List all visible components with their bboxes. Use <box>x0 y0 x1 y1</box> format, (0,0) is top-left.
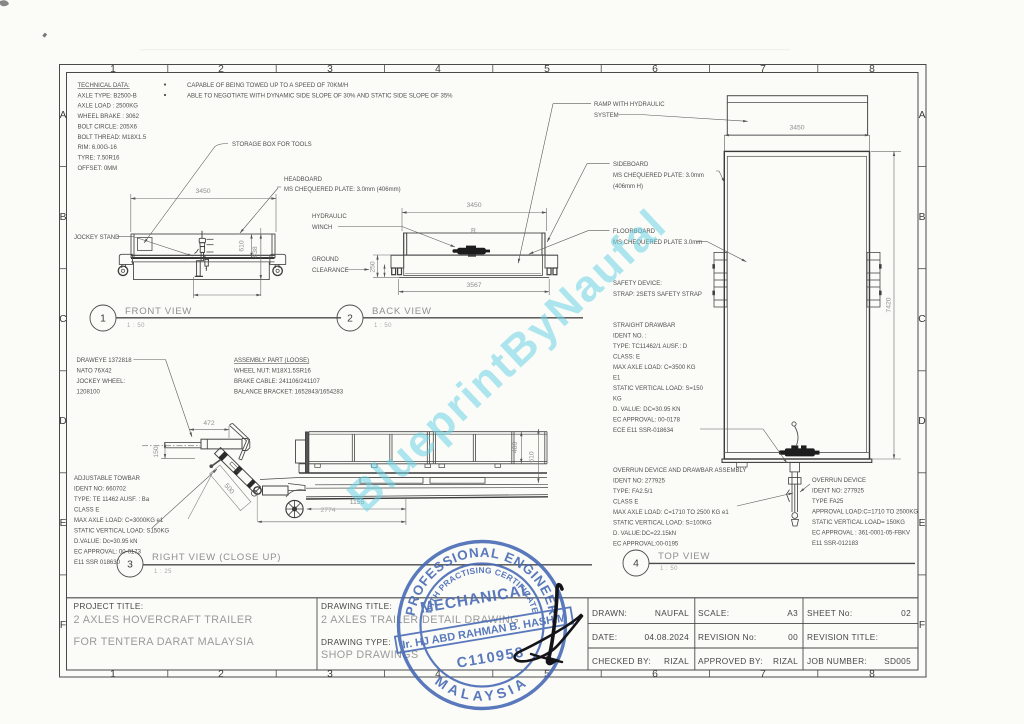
svg-text:E11 SSR 018630: E11 SSR 018630 <box>74 560 121 566</box>
svg-text:EC APPROVAL:00-0195: EC APPROVAL:00-0195 <box>613 542 679 548</box>
svg-text:1: 1 <box>110 669 116 680</box>
svg-text:STATIC VERTICAL LOAD: S=150: STATIC VERTICAL LOAD: S=150 <box>613 386 704 392</box>
svg-text:A3: A3 <box>787 608 798 618</box>
svg-text:406: 406 <box>512 442 519 454</box>
svg-text:3: 3 <box>327 64 333 75</box>
svg-text:EC APPROVAL : 361-0001-05-FBKV: EC APPROVAL : 361-0001-05-FBKV <box>812 531 910 537</box>
svg-text:CLASS E: CLASS E <box>613 500 638 506</box>
svg-text:1: 1 <box>110 64 116 75</box>
svg-text:C: C <box>59 314 67 325</box>
svg-text:TYPE: FA2.5/1: TYPE: FA2.5/1 <box>613 489 653 495</box>
svg-text:D.VALUE: Dc=30.95 kN: D.VALUE: Dc=30.95 kN <box>74 539 137 545</box>
svg-text:DRAWING TYPE:: DRAWING TYPE: <box>321 637 391 647</box>
svg-text:E1: E1 <box>613 376 621 382</box>
svg-text:JOCKEY STAND: JOCKEY STAND <box>74 235 120 241</box>
svg-text:C: C <box>918 314 926 325</box>
svg-text:EC APPROVAL: 00-0178: EC APPROVAL: 00-0178 <box>613 418 681 424</box>
svg-text:5: 5 <box>544 64 550 75</box>
svg-text:TYRE: 7.50R16: TYRE: 7.50R16 <box>78 156 121 162</box>
svg-text:3450: 3450 <box>466 202 481 209</box>
svg-text:00: 00 <box>788 632 798 642</box>
svg-text:AXLE TYPE: B2500-B: AXLE TYPE: B2500-B <box>78 93 137 99</box>
svg-text:6: 6 <box>652 64 658 75</box>
svg-text:WINCH: WINCH <box>312 225 332 231</box>
svg-text:E: E <box>60 518 67 529</box>
svg-text:MAX AXLE LOAD: C=3500 KG: MAX AXLE LOAD: C=3500 KG <box>613 365 696 371</box>
svg-text:STRAP: 2SETS SAFETY STRAP: STRAP: 2SETS SAFETY STRAP <box>613 292 702 298</box>
svg-text:1: 1 <box>100 314 106 325</box>
svg-text:JOCKEY WHEEL:: JOCKEY WHEEL: <box>77 379 126 385</box>
svg-text:STATIC VERTICAL LOAD: S=100KG: STATIC VERTICAL LOAD: S=100KG <box>613 521 712 527</box>
svg-text:BOLT THREAD: M18X1.5: BOLT THREAD: M18X1.5 <box>78 135 147 141</box>
svg-text:IDENT NO. :: IDENT NO. : <box>613 334 647 340</box>
svg-text:D. VALUE:DC=22.15kN: D. VALUE:DC=22.15kN <box>613 531 676 537</box>
svg-text:150: 150 <box>153 446 160 458</box>
svg-text:IDENT NO: 277925: IDENT NO: 277925 <box>812 489 865 495</box>
svg-text:OFFSET: 0MM: OFFSET: 0MM <box>78 166 118 172</box>
svg-text:DRAWEYE 1372818: DRAWEYE 1372818 <box>77 358 133 364</box>
svg-text:BRAKE CABLE: 241106/241107: BRAKE CABLE: 241106/241107 <box>234 379 321 385</box>
svg-text:D. VALUE: DC=30.95 KN: D. VALUE: DC=30.95 KN <box>613 407 680 413</box>
svg-text:JOB NUMBER:: JOB NUMBER: <box>807 656 867 666</box>
svg-text:1 : 50: 1 : 50 <box>660 566 678 572</box>
svg-text:STATIC VERTICAL LOAD: S150KG: STATIC VERTICAL LOAD: S150KG <box>74 529 169 535</box>
svg-text:CLASS E: CLASS E <box>74 508 99 514</box>
svg-text:3: 3 <box>127 560 133 571</box>
svg-text:MAX AXLE LOAD: C=1710 TO 2500: MAX AXLE LOAD: C=1710 TO 2500 KG e1 <box>613 510 729 516</box>
svg-text:IDENT NO: 277925: IDENT NO: 277925 <box>613 479 666 485</box>
svg-text:A: A <box>60 110 67 121</box>
svg-text:DRAWING TITLE:: DRAWING TITLE: <box>321 601 392 611</box>
svg-text:RAMP WITH HYDRAULIC: RAMP WITH HYDRAULIC <box>594 102 665 108</box>
svg-text:REVISION TITLE:: REVISION TITLE: <box>807 632 878 642</box>
svg-text:FRONT VIEW: FRONT VIEW <box>125 306 192 317</box>
svg-text:8: 8 <box>869 669 875 680</box>
svg-text:GROUND: GROUND <box>312 257 339 263</box>
svg-text:R: R <box>471 228 476 235</box>
svg-text:REVISION No:: REVISION No: <box>698 632 756 642</box>
svg-text:472: 472 <box>203 420 215 427</box>
svg-text:CAPABLE OF BEING TOWED UP TO A: CAPABLE OF BEING TOWED UP TO A SPEED OF … <box>187 83 348 89</box>
svg-text:8: 8 <box>869 64 875 75</box>
svg-text:TYPE: TC11462/1 AUSF.: D: TYPE: TC11462/1 AUSF.: D <box>613 344 688 350</box>
svg-text:APPROVAL LOAD:C=1710 TO 2500KG: APPROVAL LOAD:C=1710 TO 2500KG <box>812 510 918 516</box>
svg-text:RIZAL: RIZAL <box>773 656 798 666</box>
svg-text:DRAWN:: DRAWN: <box>592 608 627 618</box>
svg-text:ASSEMBLY PART (LOOSE): ASSEMBLY PART (LOOSE) <box>234 358 309 364</box>
svg-text:B: B <box>60 212 67 223</box>
svg-text:D: D <box>59 416 66 427</box>
svg-text:SIDEBOARD: SIDEBOARD <box>613 162 649 168</box>
svg-text:OVERRUN DEVICE: OVERRUN DEVICE <box>812 478 866 484</box>
svg-text:(406mm H): (406mm H) <box>613 184 643 190</box>
svg-text:838: 838 <box>252 246 259 258</box>
svg-text:RIM: 6.00G-16: RIM: 6.00G-16 <box>78 145 118 151</box>
svg-text:CHECKED BY:: CHECKED BY: <box>592 656 651 666</box>
svg-text:TYPE FA25: TYPE FA25 <box>812 499 844 505</box>
svg-text:1208100: 1208100 <box>77 390 101 396</box>
svg-text:WHEEL BRAKE : 3062: WHEEL BRAKE : 3062 <box>78 114 140 120</box>
svg-text:F: F <box>60 620 66 631</box>
svg-text:RIZAL: RIZAL <box>664 656 689 666</box>
svg-text:CLEARANCE: CLEARANCE <box>312 268 349 274</box>
svg-text:02: 02 <box>901 608 911 618</box>
svg-text:2: 2 <box>347 314 353 325</box>
svg-text:MS CHEQUERED PLATE: 3.0mm: MS CHEQUERED PLATE: 3.0mm <box>613 173 704 179</box>
svg-text:WHEEL NUT: M18X1.5SR16: WHEEL NUT: M18X1.5SR16 <box>234 369 311 375</box>
svg-text:OVERRUN DEVICE AND DRAWBAR ASS: OVERRUN DEVICE AND DRAWBAR ASSEMBLY <box>613 468 746 474</box>
svg-text:STORAGE BOX FOR TOOLS: STORAGE BOX FOR TOOLS <box>232 142 312 148</box>
svg-text:2: 2 <box>218 64 224 75</box>
svg-text:MAX AXLE LOAD: C=3000KG e1: MAX AXLE LOAD: C=3000KG e1 <box>74 518 164 524</box>
svg-text:RIGHT VIEW (CLOSE UP): RIGHT VIEW (CLOSE UP) <box>152 552 281 563</box>
svg-text:610: 610 <box>239 240 246 252</box>
svg-text:NATO 76X42: NATO 76X42 <box>77 369 113 375</box>
svg-text:2 AXLES HOVERCRAFT TRAILER: 2 AXLES HOVERCRAFT TRAILER <box>74 614 253 626</box>
svg-text:NAUFAL: NAUFAL <box>655 608 689 618</box>
svg-text:APPROVED BY:: APPROVED BY: <box>698 656 763 666</box>
svg-text:D: D <box>918 416 925 427</box>
svg-text:HYDRAULIC: HYDRAULIC <box>312 214 347 220</box>
svg-text:FOR TENTERA DARAT MALAYSIA: FOR TENTERA DARAT MALAYSIA <box>74 636 255 648</box>
svg-text:SD005: SD005 <box>884 656 911 666</box>
svg-text:3450: 3450 <box>789 125 804 132</box>
svg-text:ADJUSTABLE TOWBAR: ADJUSTABLE TOWBAR <box>74 476 141 482</box>
svg-text:4: 4 <box>435 64 441 75</box>
svg-text:STATIC VERTICAL LOAD= 150KG: STATIC VERTICAL LOAD= 150KG <box>812 520 905 526</box>
svg-text:3567: 3567 <box>466 282 481 289</box>
svg-text:F: F <box>919 620 925 631</box>
svg-text:ECE E11 SSR-018634: ECE E11 SSR-018634 <box>613 428 674 434</box>
svg-text:SYSTEM: SYSTEM <box>594 113 619 119</box>
svg-text:3450: 3450 <box>195 188 210 195</box>
svg-text:MS CHEQUERED PLATE: 3.0mm (406: MS CHEQUERED PLATE: 3.0mm (406mm) <box>284 187 401 193</box>
svg-text:CLASS: E: CLASS: E <box>613 355 640 361</box>
svg-text:610: 610 <box>529 451 536 463</box>
svg-text:7: 7 <box>760 64 766 75</box>
svg-text:AXLE LOAD : 2500KG: AXLE LOAD : 2500KG <box>78 104 139 110</box>
svg-text:EC APPROVAL: 00-0173: EC APPROVAL: 00-0173 <box>74 550 142 556</box>
svg-text:1 : 25: 1 : 25 <box>154 569 172 575</box>
svg-text:TYPE: TE 11462 AUSF. : Ba: TYPE: TE 11462 AUSF. : Ba <box>74 497 150 503</box>
svg-text:STRAIGHT DRAWBAR: STRAIGHT DRAWBAR <box>613 323 676 329</box>
svg-text:E: E <box>919 518 926 529</box>
svg-text:4: 4 <box>633 559 639 570</box>
svg-text:SHEET No:: SHEET No: <box>807 608 852 618</box>
svg-text:04.08.2024: 04.08.2024 <box>644 632 689 642</box>
svg-text:2774: 2774 <box>320 507 335 514</box>
svg-text:BALANCE BRACKET: 1652843/16542: BALANCE BRACKET: 1652843/1654283 <box>234 390 344 396</box>
svg-text:HEADBOARD: HEADBOARD <box>284 177 323 183</box>
svg-text:B: B <box>919 212 926 223</box>
svg-text:3: 3 <box>327 669 333 680</box>
svg-text:IDENT NO: 660702: IDENT NO: 660702 <box>74 487 127 493</box>
svg-text:TOP VIEW: TOP VIEW <box>658 551 710 562</box>
svg-text:BACK VIEW: BACK VIEW <box>372 306 432 317</box>
svg-text:250: 250 <box>370 261 377 273</box>
svg-text:2: 2 <box>218 669 224 680</box>
svg-text:TECHNICAL DATA:: TECHNICAL DATA: <box>78 83 131 89</box>
svg-text:7: 7 <box>760 669 766 680</box>
svg-text:PROJECT TITLE:: PROJECT TITLE: <box>74 601 144 611</box>
svg-text:SCALE:: SCALE: <box>698 608 729 618</box>
svg-text:DATE:: DATE: <box>592 632 617 642</box>
svg-text:E11 SSR-012183: E11 SSR-012183 <box>812 541 859 547</box>
svg-text:A: A <box>919 110 926 121</box>
svg-text:1 : 50: 1 : 50 <box>374 323 392 329</box>
svg-text:KG: KG <box>613 397 622 403</box>
svg-text:7420: 7420 <box>886 297 893 312</box>
svg-text:BOLT CIRCLE: 205X6: BOLT CIRCLE: 205X6 <box>78 124 138 130</box>
svg-text:ABLE TO NEGOTIATE WITH DYNAMIC: ABLE TO NEGOTIATE WITH DYNAMIC SIDE SLOP… <box>187 94 453 100</box>
svg-text:6: 6 <box>652 669 658 680</box>
svg-text:1 : 50: 1 : 50 <box>127 323 145 329</box>
